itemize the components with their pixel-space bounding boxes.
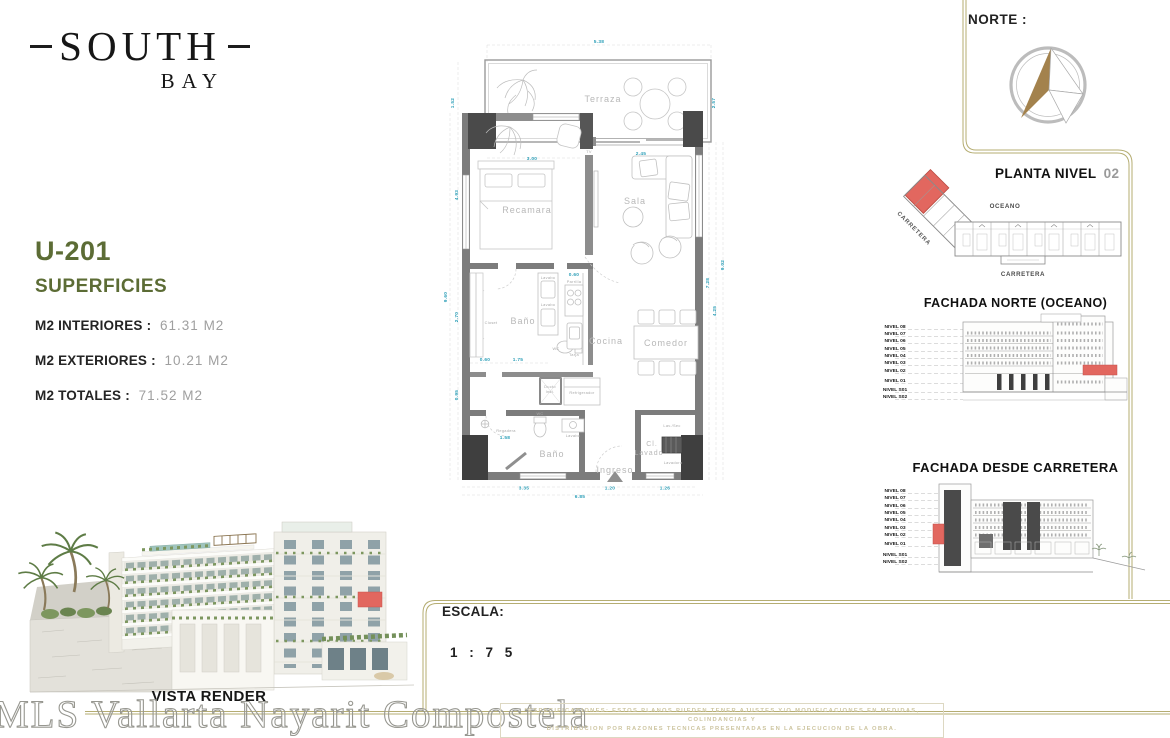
fixture-lavabo-b: Lavabo [541,302,556,307]
room-label-sala: Sala [624,196,646,206]
fixture-lavadora: Lavadora [664,460,683,465]
fachada-norte-diagram: NIVEL 08 NIVEL 07 NIVEL 06 NIVEL 05 NIVE… [893,312,1143,417]
fixture-wc-a: WC [552,346,559,351]
fc-level-04: NIVEL 04 [884,517,905,523]
fixture-lav-sec: Lav./Sec [663,423,680,428]
room-label-bano-upper: Baño [510,316,535,326]
planta-main-wing [955,222,1121,264]
dim-left-bano: 2.70 [454,312,460,323]
fn-building [963,314,1127,400]
room-label-cocina: Cocina [589,336,623,346]
dim-bottom-ingreso: 1.20 [605,486,616,492]
dim-left-terraza: 1.52 [450,98,456,109]
room-label-cl: Cl. [646,441,658,448]
dim-bottom-total: 6.85 [575,494,586,500]
fixture-regadera: Regadera [496,428,516,433]
fc-level-05: NIVEL 05 [884,510,905,516]
bedroom-chair [556,123,583,150]
fn-level-s02: NIVEL S02 [883,394,908,400]
fn-level-06: NIVEL 06 [884,338,905,344]
metric-value: 10.21 M2 [165,353,229,368]
escala-value: 1 : 7 5 [450,645,516,660]
room-label-lavado: Lavado [635,450,664,457]
planta-oceano-label: OCEANO [990,203,1021,210]
metric-exteriores: M2 EXTERIORES : 10.21 M2 [35,353,229,368]
fixture-lavabo-c: Lavabo [566,433,581,438]
logo-dash-right [228,45,250,48]
logo-name: SOUTH [59,26,221,67]
fc-level-01: NIVEL 01 [884,541,905,547]
metric-totales: M2 TOTALES : 71.52 M2 [35,388,229,403]
fc-unit-highlight [933,524,944,544]
compass-icon [1005,42,1095,132]
fn-level-03: NIVEL 03 [884,360,905,366]
fixture-lavabo-a: Lavabo [541,275,556,280]
fachada-carretera-diagram: NIVEL 08 NIVEL 07 NIVEL 06 NIVEL 05 NIVE… [893,472,1148,590]
disclaimer-line-2: DISTRIBUCION POR RAZONES TECNICAS PRESEN… [507,725,937,734]
fc-level-07: NIVEL 07 [884,495,905,501]
metric-value: 71.52 M2 [139,388,203,403]
room-label-bano-lower: Baño [539,449,564,459]
unit-id: U-201 [35,236,229,267]
planta-carretera-bottom-label: CARRETERA [1001,271,1045,278]
fn-level-05: NIVEL 05 [884,346,905,352]
room-label-ingreso: Ingreso [596,465,633,475]
fc-level-03: NIVEL 03 [884,525,905,531]
norte-label: NORTE : [968,12,1027,27]
fn-level-04: NIVEL 04 [884,353,905,359]
dim-bottom-lavado: 1.26 [660,486,671,492]
planta-unit-highlight [905,170,949,214]
render-garage-wall [172,610,274,690]
dim-right-sala: 7.28 [705,278,711,289]
dim-left-total: 9.60 [443,292,449,303]
logo-subname: BAY [30,69,250,94]
fn-level-02: NIVEL 02 [884,368,905,374]
tv-unit [594,171,598,227]
dim-top: 5.38 [594,39,605,45]
fn-level-07: NIVEL 07 [884,331,905,337]
dim-sala-window: 2.45 [636,151,647,157]
metric-value: 61.31 M2 [160,318,224,333]
room-label-terraza: Terraza [584,94,621,104]
fixture-ducto-2: Inst. [546,389,555,394]
terraza-table [624,78,686,130]
unit-section-title: SUPERFICIES [35,276,229,298]
dim-bano-door: 0.60 [480,357,491,363]
unit-info: U-201 SUPERFICIES M2 INTERIORES : 61.31 … [35,236,229,403]
escala-block: ESCALA: 1 : 7 5 [442,604,516,660]
dim-bano-width: 1.75 [513,357,524,363]
floorplan: Terraza Recamara Sala Baño Cocina Comedo… [428,25,748,515]
building-render [22,492,420,697]
room-label-comedor: Comedor [644,338,688,348]
fn-unit-highlight [1083,365,1117,375]
fachada-norte-title: FACHADA NORTE (OCEANO) [893,296,1138,310]
dim-right-terraza: 2.57 [711,98,717,109]
dim-bottom-bano: 3.35 [519,486,530,492]
metric-interiores: M2 INTERIORES : 61.31 M2 [35,318,229,333]
sofa [623,156,692,264]
fixture-wc-b: WC [536,411,543,416]
fc-level-s01: NIVEL S01 [883,552,908,558]
metric-label: M2 EXTERIORES : [35,353,156,368]
fc-tree-icons [1092,544,1136,564]
render-unit-highlight [358,592,382,607]
fc-level-06: NIVEL 06 [884,503,905,509]
render-annex [322,635,407,680]
dim-left-recamara: 4.93 [454,190,460,201]
dim-right-mid: 4.25 [712,306,718,317]
planta-carretera-diagonal-label: CARRETERA [896,211,932,247]
escala-label: ESCALA: [442,604,516,619]
dim-parrilla: 0.60 [569,272,580,278]
disclaimer-box: *ESPECIFICACIONES: ESTOS PLANOS PUEDEN T… [500,703,944,738]
fixture-parrilla: Parrilla [567,279,582,284]
dim-left-lower: 0.95 [454,390,460,401]
fixture-refrigerador: Refrigerador [569,390,595,395]
metric-label: M2 TOTALES : [35,388,130,403]
fn-level-01: NIVEL 01 [884,378,905,384]
fn-level-08: NIVEL 08 [884,324,905,330]
fixture-closet: Closet [485,320,498,325]
room-label-recamara: Recamara [502,205,552,215]
planta-nivel-diagram: OCEANO CARRETERA [893,170,1138,288]
fc-level-s02: NIVEL S02 [883,559,908,565]
disclaimer-line-1: *ESPECIFICACIONES: ESTOS PLANOS PUEDEN T… [507,707,937,725]
fc-building [933,484,1145,572]
dim-guides [450,45,723,495]
fc-level-08: NIVEL 08 [884,488,905,494]
plan-sheet: SOUTH BAY U-201 SUPERFICIES M2 INTERIORE… [0,0,1170,738]
terraza-plant [497,70,537,113]
brand-logo: SOUTH BAY [30,26,250,94]
fixture-tarja: Tarja [569,352,579,357]
fn-level-s01: NIVEL S01 [883,387,908,393]
fc-level-02: NIVEL 02 [884,532,905,538]
dim-regadera: 1.58 [500,435,511,441]
dim-right-total: 9.02 [720,260,726,271]
dim-recamara-width: 3.00 [527,156,538,162]
metric-label: M2 INTERIORES : [35,318,151,333]
logo-dash-left [30,45,52,48]
fixture-tv: TV [586,149,592,154]
